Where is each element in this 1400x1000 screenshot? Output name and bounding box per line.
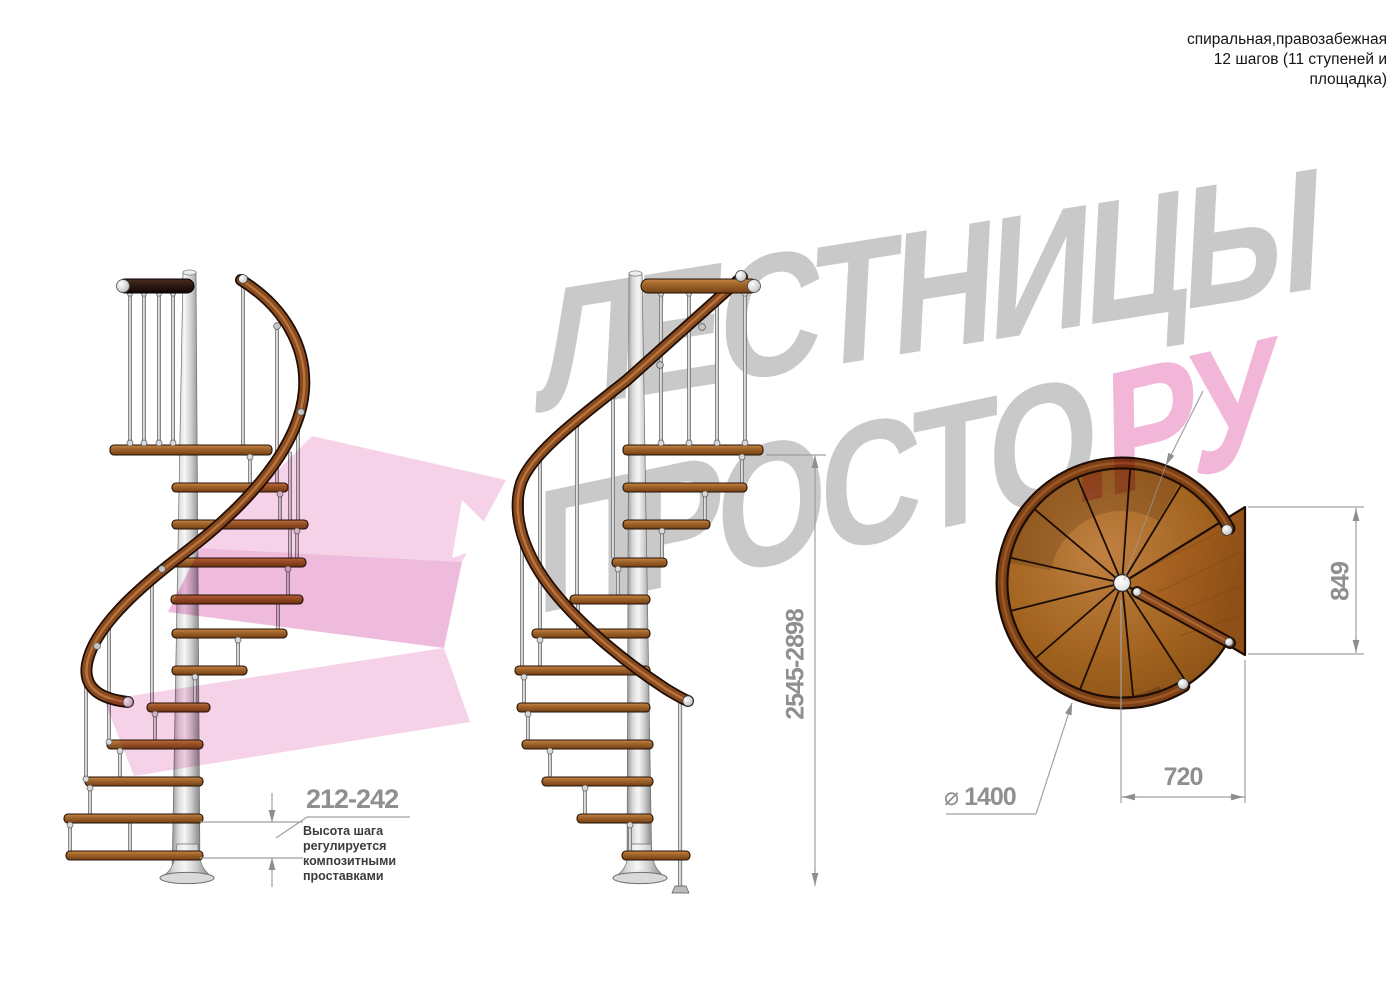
dimension-step-height: 212-242 [306,784,398,815]
diameter-symbol: ⌀ [944,782,958,811]
title-line: 12 шагов (11 ступеней и [967,50,1387,70]
note-line: композитными [303,854,396,869]
title-line: спиральная,правозабежная [967,30,1387,50]
dimension-landing-width: 720 [1140,763,1226,792]
step-height-note: Высота шага регулируется композитными пр… [303,824,396,884]
diameter-value: 1400 [964,783,1016,811]
note-line: проставками [303,869,396,884]
dimension-landing-depth: 849 [1327,522,1356,642]
dimension-total-height: 2545-2898 [782,545,811,785]
note-line: Высота шага [303,824,396,839]
note-line: регулируется [303,839,396,854]
technical-drawing-sheet: ЛЕСТНИЦЫ ПРОСТО [0,0,1400,1000]
dimension-diameter: ⌀1400 [944,782,1016,812]
dimension-lines [0,0,1400,1000]
drawing-title: спиральная,правозабежная 12 шагов (11 ст… [967,30,1387,90]
title-line: площадка) [967,70,1387,90]
